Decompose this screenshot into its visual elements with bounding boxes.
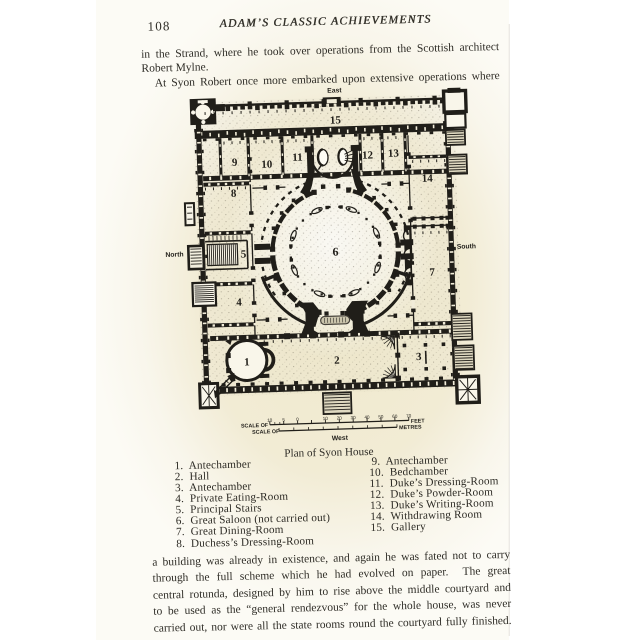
svg-text:10: 10 <box>267 418 273 423</box>
svg-text:3: 3 <box>416 351 422 363</box>
svg-text:40: 40 <box>364 415 370 420</box>
svg-text:South: South <box>457 243 476 251</box>
svg-text:70: 70 <box>406 413 412 418</box>
svg-text:10: 10 <box>323 416 329 421</box>
svg-text:5: 5 <box>241 248 247 260</box>
svg-text:15: 15 <box>330 114 342 126</box>
svg-text:5: 5 <box>282 417 285 422</box>
svg-text:12: 12 <box>362 149 374 161</box>
svg-text:SCALE OF: SCALE OF <box>252 429 280 436</box>
svg-text:11: 11 <box>292 152 303 164</box>
svg-text:14: 14 <box>422 173 434 185</box>
svg-text:6: 6 <box>332 245 338 259</box>
svg-text:9: 9 <box>232 157 238 169</box>
svg-text:West: West <box>332 435 349 443</box>
svg-text:2: 2 <box>334 355 340 367</box>
svg-text:North: North <box>165 251 183 259</box>
svg-text:8: 8 <box>231 188 237 200</box>
svg-text:0: 0 <box>296 417 299 422</box>
svg-text:50: 50 <box>378 414 384 419</box>
svg-text:13: 13 <box>388 148 400 160</box>
svg-text:10: 10 <box>261 159 273 171</box>
svg-text:60: 60 <box>392 414 398 419</box>
svg-text:20: 20 <box>337 415 343 420</box>
svg-text:1: 1 <box>244 356 250 368</box>
svg-text:30: 30 <box>350 415 356 420</box>
svg-text:7: 7 <box>429 266 435 278</box>
svg-text:METRES: METRES <box>399 424 422 431</box>
svg-text:East: East <box>327 87 342 94</box>
svg-text:4: 4 <box>236 297 242 309</box>
